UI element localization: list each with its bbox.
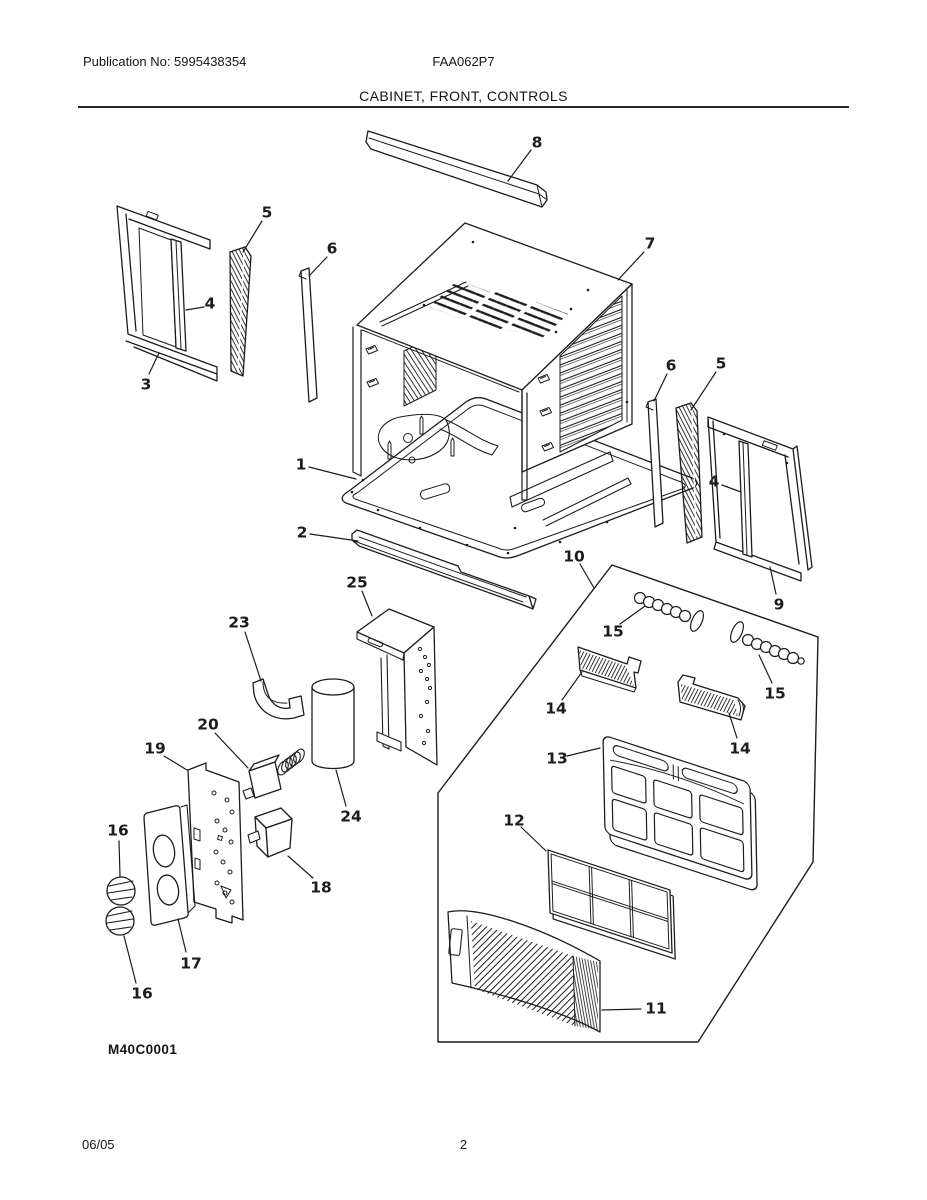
callout-leader-20 [215,733,248,768]
callout-leader-8 [508,150,531,181]
part-17-control-bezel-shape [144,805,195,925]
part-19-mounting-plate-shape [188,763,243,923]
callout-number-6: 6 [666,357,677,375]
callout-number-16: 16 [107,822,129,840]
callout-leader-15 [620,606,645,624]
callout-leader-10 [580,564,594,588]
callout-number-16: 16 [131,985,153,1003]
callout-leader-17 [178,919,186,952]
callout-number-3: 3 [141,376,152,394]
part-8-top-trim-shape [366,131,547,207]
callout-leader-3 [149,353,159,374]
callout-number-23: 23 [228,614,250,632]
callout-leader-11 [602,1009,641,1010]
callout-number-20: 20 [197,716,219,734]
callout-leader-7 [618,252,644,280]
callout-leader-16 [124,936,136,983]
part-5-foam-seal-left-shape [230,247,251,376]
callout-leader-15 [759,655,772,683]
callout-number-13: 13 [546,750,568,768]
callout-number-5: 5 [716,355,727,373]
callout-number-7: 7 [645,235,656,253]
callout-number-24: 24 [340,808,362,826]
callout-leader-5 [243,221,262,252]
callout-number-19: 19 [144,740,166,758]
callout-number-14: 14 [729,740,751,758]
callout-number-4: 4 [709,473,720,491]
callout-number-17: 17 [180,955,202,973]
part-16-knob-top-shape [107,877,135,905]
callout-number-11: 11 [645,1000,667,1018]
callout-leader-13 [567,748,600,756]
callout-number-15: 15 [764,685,786,703]
part-25-control-bracket-shape [357,609,437,765]
part-9-window-frame-right-shape [708,417,812,581]
callout-leader-6 [654,374,667,401]
callout-leader-1 [309,467,356,479]
callout-number-12: 12 [503,812,525,830]
part-6-seal-strip-left-shape [299,268,317,402]
callout-leader-6 [309,257,327,276]
callout-number-18: 18 [310,879,332,897]
diagram-code-label: M40C0001 [108,1042,177,1057]
callout-leader-5 [691,372,716,410]
callout-leader-12 [521,827,546,851]
parts-catalog-page: Publication No: 5995438354 FAA062P7 CABI… [0,0,927,1200]
callout-number-14: 14 [545,700,567,718]
part-20-thermostat-shape [243,747,306,799]
callout-number-2: 2 [297,524,308,542]
callout-number-9: 9 [774,596,785,614]
callout-leader-19 [164,756,187,770]
callout-number-15: 15 [602,623,624,641]
callout-leader-25 [362,591,372,616]
callout-leader-2 [310,534,358,541]
part-3-window-frame-left-shape [117,206,217,381]
callout-leader-4 [186,307,204,310]
part-24-capacitor-shape [312,679,354,769]
part-14-foam-block-left-shape [578,647,641,692]
callout-number-10: 10 [563,548,585,566]
part-12-air-filter-shape [548,850,675,959]
callout-number-25: 25 [346,574,368,592]
callout-number-5: 5 [262,204,273,222]
callout-leader-18 [288,856,313,878]
callout-number-6: 6 [327,240,338,258]
part-23-clamp-shape [253,679,304,719]
part-13-front-frame-shape [603,735,757,892]
callout-leader-16 [119,841,120,876]
part-16-knob-bottom-shape [106,907,134,935]
part-18-switch-shape [248,808,292,857]
callout-leader-24 [336,770,346,806]
footer-page-number: 2 [0,1137,927,1152]
part-14-foam-block-right-shape [678,675,745,720]
callout-leader-14 [562,672,582,700]
callout-number-4: 4 [205,295,216,313]
callout-leader-4 [722,485,741,492]
part-11-front-grille-shape [448,911,600,1032]
part-15-disc-set-right-shape [728,620,804,664]
callout-number-8: 8 [532,134,543,152]
callout-number-1: 1 [296,456,307,474]
callout-leader-23 [245,632,261,681]
part-15-disc-set-left-shape [635,593,707,634]
part-1-base-pan-shape [342,398,697,558]
exploded-parts-diagram: 8756431265491015151414131211252324201918… [0,0,927,1200]
